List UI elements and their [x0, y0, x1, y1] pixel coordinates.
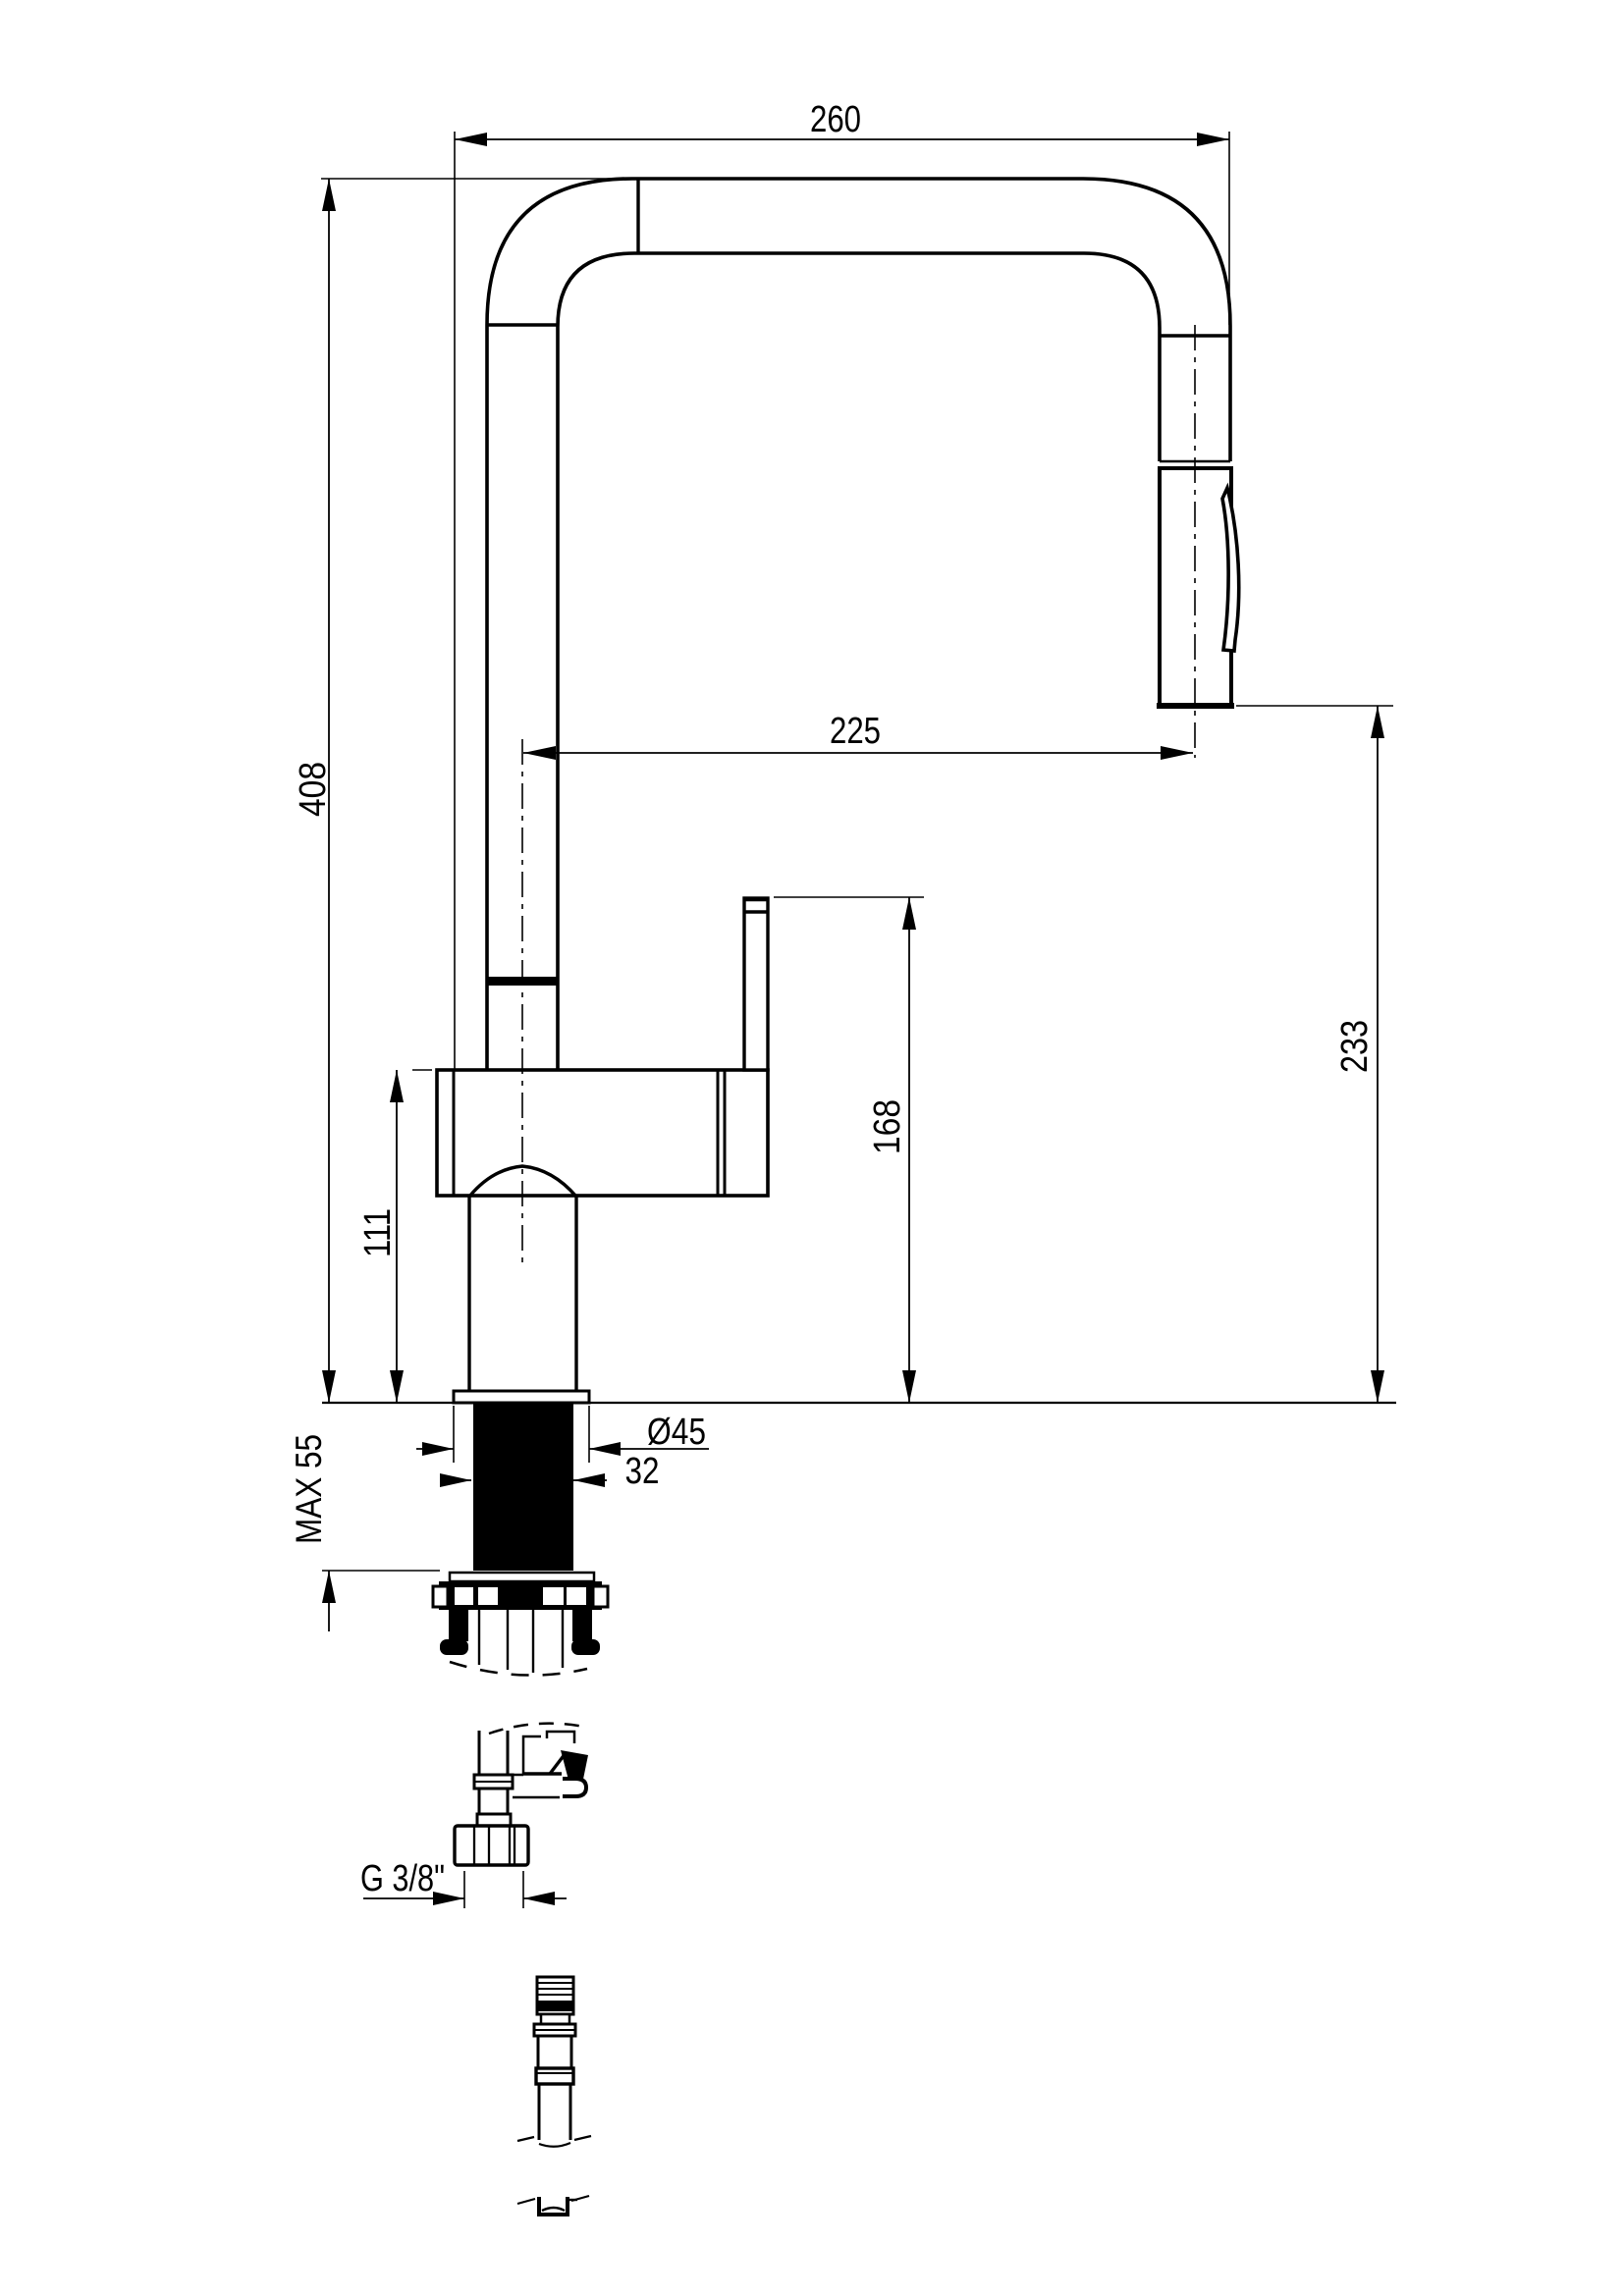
arrowhead-left-pointing — [573, 1473, 605, 1487]
dimension-111-body-height: 111 — [357, 1070, 432, 1403]
plate-cutout — [543, 1587, 564, 1605]
dim-408-label: 408 — [293, 762, 334, 817]
arrowhead-bottom — [902, 1370, 916, 1403]
base-column — [454, 1197, 589, 1403]
dim-225-label: 225 — [830, 711, 881, 752]
plate-cutout — [567, 1587, 586, 1605]
connector-break-dash — [517, 2137, 534, 2141]
dim-111-label: 111 — [357, 1208, 399, 1257]
right-mounting-bolt — [572, 1610, 592, 1641]
dim-45-label: Ø45 — [647, 1412, 706, 1453]
quick-connector — [517, 1977, 591, 2215]
arrowhead-top — [390, 1070, 404, 1102]
mixer-body — [437, 1070, 768, 1197]
connector-cylinder — [538, 2036, 571, 2068]
nut-body — [455, 1826, 528, 1865]
arrowhead-right — [1197, 133, 1229, 146]
plate-cutout — [455, 1587, 473, 1605]
spray-head — [1157, 468, 1239, 706]
connection-nut — [455, 1814, 528, 1865]
arrowhead-bottom — [322, 1370, 336, 1403]
mounting-bracket — [433, 1573, 608, 1655]
arrowhead-right-pointing — [422, 1442, 454, 1456]
plate-right-tab — [593, 1586, 608, 1607]
handle-rod — [744, 898, 768, 1070]
arrowhead-top — [322, 179, 336, 211]
connector-oring-band — [537, 2001, 573, 2011]
connector-cup-dash-right — [571, 2196, 589, 2201]
base-flange — [454, 1391, 589, 1403]
dim-168-label: 168 — [867, 1099, 908, 1154]
arrowhead-bottom — [390, 1370, 404, 1403]
arrowhead-up — [322, 1571, 336, 1603]
dim-32-label: 32 — [625, 1451, 660, 1492]
dim-233-label: 233 — [1334, 1020, 1376, 1073]
arrowhead-left-pointing — [589, 1442, 621, 1456]
arrowhead-left-pointing — [523, 1892, 555, 1905]
plate-left-tab — [433, 1586, 448, 1607]
dimension-168-handle-height: 168 — [774, 897, 924, 1403]
faucet-technical-drawing: 260 225 408 233 168 111 — [0, 0, 1624, 2296]
connector-break-dash — [539, 2143, 570, 2147]
dimension-408-total-height: 408 — [293, 179, 634, 1403]
connector-end-cup — [539, 2197, 568, 2215]
arrowhead-right-pointing — [440, 1473, 471, 1487]
arrowhead-left — [523, 746, 556, 760]
arrowhead-top — [1371, 706, 1384, 738]
arrowhead-bottom — [1371, 1370, 1384, 1403]
hose-break-arc-upper — [450, 1662, 587, 1676]
spout — [487, 179, 1230, 1078]
connector-cup-dash-left — [517, 2199, 535, 2204]
arrowhead-right — [1161, 746, 1193, 760]
angle-valve — [513, 1732, 588, 1797]
shank-thread — [473, 1403, 573, 1571]
dim-g38-label: G 3/8" — [360, 1858, 445, 1899]
plate-cutout — [478, 1587, 498, 1605]
left-mounting-bolt — [449, 1610, 468, 1641]
dim-260-label: 260 — [810, 99, 861, 140]
left-bolt-foot — [440, 1639, 468, 1655]
spout-inner-path — [558, 253, 1160, 1070]
dim-max55-label: MAX 55 — [289, 1434, 329, 1544]
dimension-225-spout-reach: 225 — [523, 711, 1193, 760]
connector-break-dash — [574, 2136, 591, 2140]
nut-collar — [477, 1814, 511, 1826]
lever-handle — [743, 898, 769, 1070]
mounting-washer — [450, 1573, 594, 1581]
spout-outer-path — [487, 179, 1230, 1070]
threaded-shank — [473, 1403, 573, 1571]
dimension-260-total-width: 260 — [455, 99, 1229, 1070]
dimension-max55-mounting: MAX 55 — [289, 1434, 440, 1631]
connector-band — [536, 2068, 573, 2084]
right-bolt-foot — [571, 1639, 600, 1655]
arrowhead-left — [455, 133, 487, 146]
dimension-233-head-to-counter: 233 — [1236, 706, 1393, 1403]
valve-outlet — [563, 1779, 586, 1796]
arrowhead-top — [902, 897, 916, 930]
drawing-canvas: 260 225 408 233 168 111 — [0, 0, 1624, 2296]
